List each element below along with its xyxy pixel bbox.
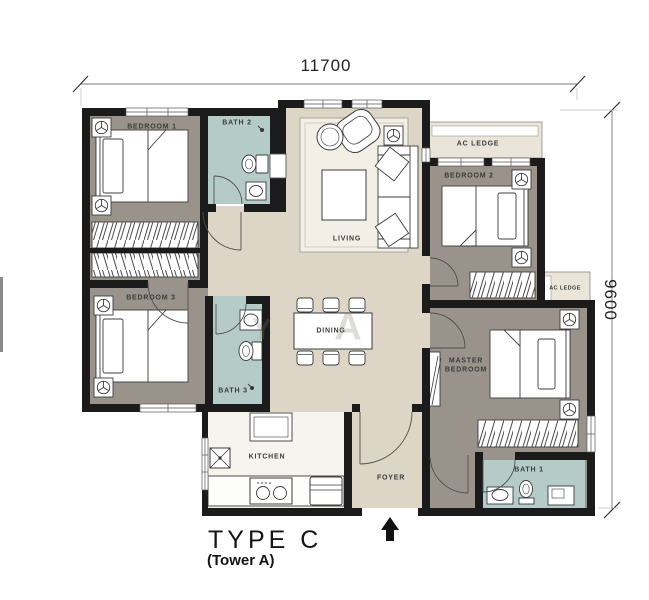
coffee-table (322, 170, 366, 220)
sofa (375, 146, 418, 248)
label-bath2: BATH 2 (222, 118, 252, 127)
fan-icon (384, 126, 403, 145)
label-living: LIVING (333, 234, 361, 243)
plan-subtitle: (Tower A) (207, 552, 275, 569)
sink-icon (246, 182, 266, 200)
fridge-icon (310, 477, 342, 505)
cabinet-icon (250, 413, 292, 441)
side-table (317, 124, 343, 150)
label-ac-ledge-top: AC LEDGE (457, 139, 500, 148)
label-foyer: FOYER (377, 473, 405, 482)
fan-icon (560, 310, 579, 329)
label-bedroom2: BEDROOM 2 (444, 171, 494, 180)
label-bath1: BATH 1 (514, 465, 544, 474)
fan-icon (512, 170, 531, 189)
entrance-arrow-icon (381, 517, 399, 541)
fan-icon (94, 378, 113, 397)
plan-title: TYPE C (208, 526, 322, 555)
label-bedroom3: BEDROOM 3 (126, 293, 176, 302)
bed-bedroom1 (96, 130, 188, 202)
stove-icon (250, 478, 292, 504)
page-edge-artifact (0, 277, 3, 352)
wardrobe-bedroom3 (92, 253, 198, 277)
dimension-height: 9600 (600, 279, 620, 321)
toilet-tank (519, 498, 534, 504)
toilet-icon (242, 155, 256, 173)
bed-bedroom2 (442, 186, 528, 246)
label-master-line2: BEDROOM (445, 367, 487, 374)
toilet-icon (239, 342, 253, 361)
label-ac-ledge-right: AC LEDGE (549, 285, 581, 292)
fan-icon (512, 248, 531, 267)
fan-icon (94, 296, 113, 315)
fan-icon (560, 400, 579, 419)
label-bedroom1: BEDROOM 1 (127, 122, 177, 131)
label-kitchen: KITCHEN (249, 452, 286, 461)
toilet-icon (520, 481, 533, 498)
watermark-letter: A (334, 307, 361, 350)
floor-plan-page: BEDROOM 1 BATH 2 LIVING AC LEDGE BEDROOM… (0, 0, 649, 600)
floor-plan-canvas (0, 0, 649, 600)
floor-drain-icon (210, 448, 230, 468)
wardrobe-master (478, 420, 578, 447)
dimension-width: 11700 (300, 56, 351, 76)
label-master-line1: MASTER (449, 358, 483, 365)
fan-icon (92, 118, 111, 137)
wardrobe-bedroom2 (470, 272, 535, 298)
bed-master (490, 330, 570, 398)
label-bath3: BATH 3 (218, 386, 248, 395)
label-master-bedroom: MASTERBEDROOM (445, 357, 487, 376)
watermark-letter: Y (252, 313, 272, 347)
fan-icon (92, 196, 111, 215)
toilet-tank (256, 155, 268, 173)
wardrobe-bedroom1 (92, 222, 198, 248)
